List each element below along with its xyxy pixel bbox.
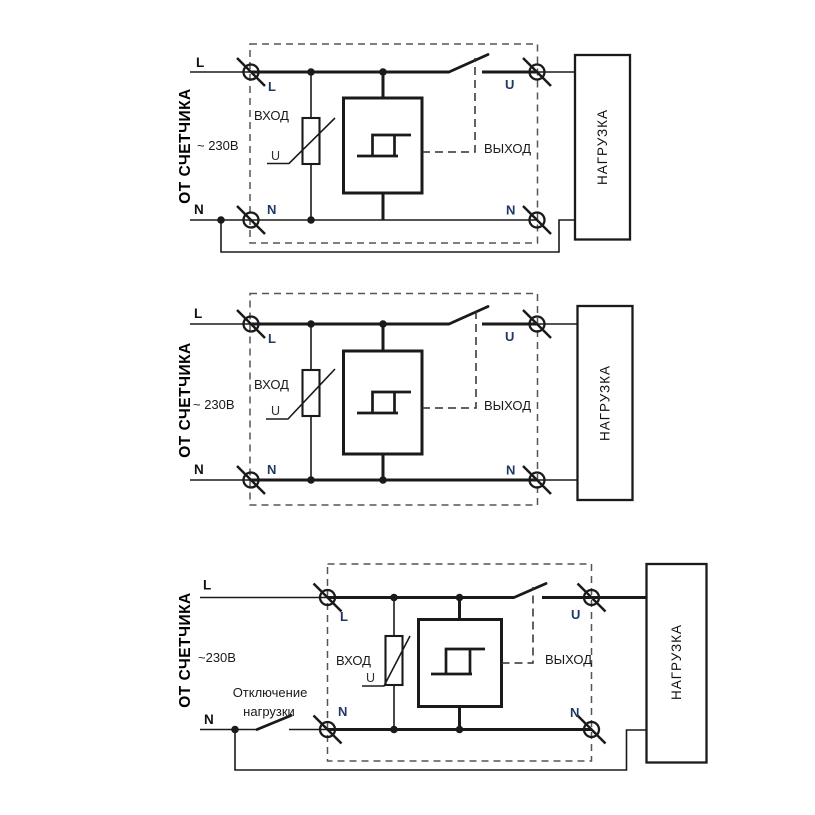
meter-source-label: ОТ СЧЕТЧИКА xyxy=(177,88,194,204)
output-label: ВЫХОД xyxy=(484,141,531,156)
voltage-label: ~ 230В xyxy=(193,397,235,412)
meter-source-label: ОТ СЧЕТЧИКА xyxy=(177,342,194,458)
diagram-bottom: ОТ СЧЕТЧИКА ~230В xyxy=(177,564,707,770)
u-out-label: U xyxy=(571,607,580,622)
relay-block xyxy=(344,72,423,220)
n-bypass-wire xyxy=(235,730,647,771)
n-out-label: N xyxy=(570,705,579,720)
varistor-symbol xyxy=(267,72,335,220)
load-label: НАГРУЗКА xyxy=(669,624,684,700)
diagram-top: ОТ СЧЕТЧИКА ~ 230В U xyxy=(177,44,630,252)
relay-switch-blade xyxy=(449,307,488,325)
u-out-label: U xyxy=(505,77,514,92)
varistor-u-label: U xyxy=(271,149,280,163)
disconnect-label-line2: нагрузки xyxy=(243,704,295,719)
hysteresis-icon xyxy=(431,649,485,674)
n-in-label: N xyxy=(267,202,276,217)
n-outer-label: N xyxy=(194,462,204,477)
output-label: ВЫХОД xyxy=(545,652,592,667)
voltage-label: ~230В xyxy=(198,650,236,665)
relay-block xyxy=(344,324,423,480)
n-in-label: N xyxy=(267,462,276,477)
n-in-label: N xyxy=(338,704,347,719)
hysteresis-icon xyxy=(357,392,411,413)
l-in-label: L xyxy=(268,79,276,94)
varistor-u-label: U xyxy=(271,404,280,418)
varistor-symbol xyxy=(266,324,335,480)
l-in-label: L xyxy=(268,331,276,346)
n-outer-label: N xyxy=(204,712,214,727)
n-out-label: N xyxy=(506,463,515,478)
n-bypass-wire xyxy=(221,220,575,252)
diagram-middle: ОТ СЧЕТЧИКА ~ 230В U xyxy=(177,294,633,506)
n-outer-label: N xyxy=(194,202,204,217)
load-label: НАГРУЗКА xyxy=(595,109,610,185)
input-label: ВХОД xyxy=(254,377,289,392)
load-label: НАГРУЗКА xyxy=(598,365,613,441)
input-label: ВХОД xyxy=(254,108,289,123)
hysteresis-icon xyxy=(357,135,411,156)
l-outer-label: L xyxy=(203,578,211,593)
meter-source-label: ОТ СЧЕТЧИКА xyxy=(177,592,194,708)
wiring-diagram-page: ОТ СЧЕТЧИКА ~ 230В U xyxy=(0,0,815,815)
relay-switch-blade xyxy=(449,55,488,73)
l-outer-label: L xyxy=(196,55,204,70)
u-out-label: U xyxy=(505,329,514,344)
wiring-diagram-canvas: ОТ СЧЕТЧИКА ~ 230В U xyxy=(0,0,815,815)
varistor-u-label: U xyxy=(366,671,375,685)
relay-switch-blade xyxy=(514,584,546,598)
input-label: ВХОД xyxy=(336,653,371,668)
l-outer-label: L xyxy=(194,306,202,321)
voltage-label: ~ 230В xyxy=(197,138,239,153)
relay-block xyxy=(419,598,502,730)
l-in-label: L xyxy=(340,609,348,624)
output-label: ВЫХОД xyxy=(484,398,531,413)
disconnect-label-line1: Отключение xyxy=(233,685,308,700)
n-out-label: N xyxy=(506,203,515,218)
